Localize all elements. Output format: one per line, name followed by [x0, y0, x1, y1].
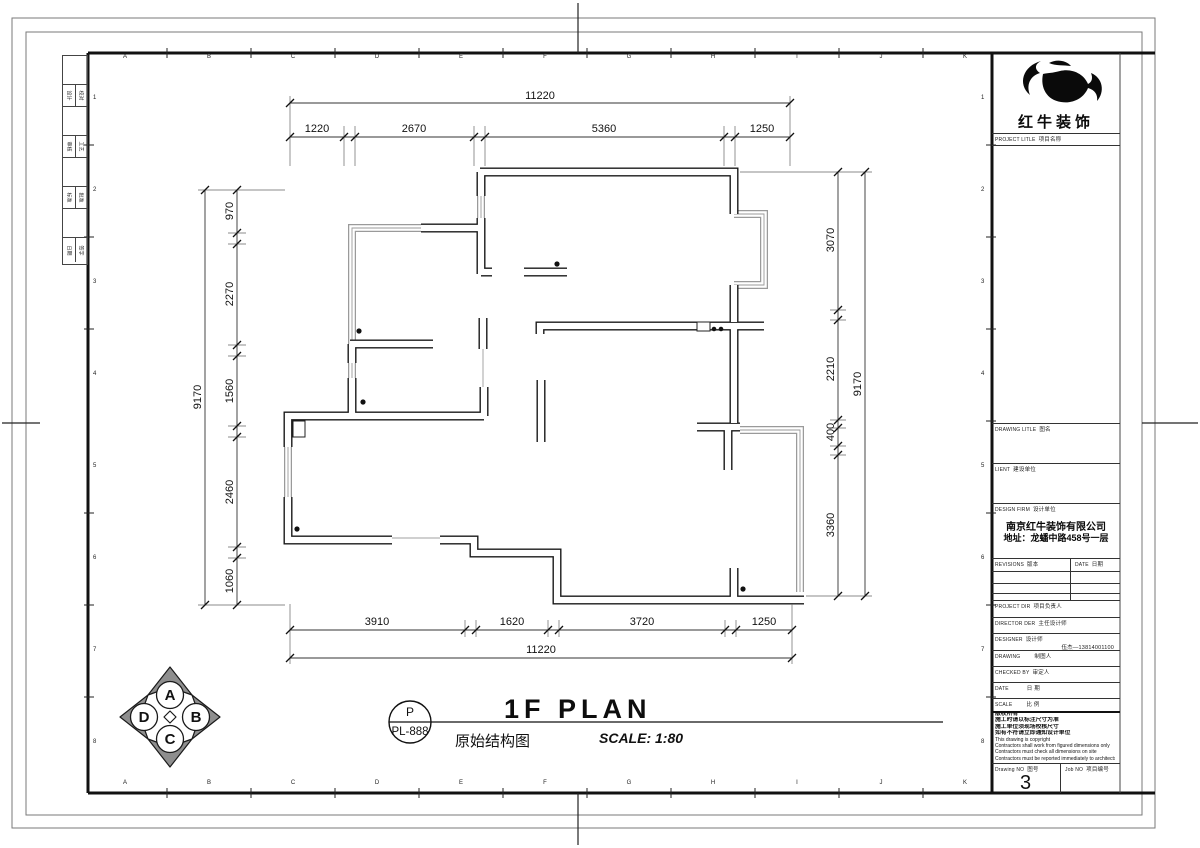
grid-number: 6 [981, 555, 984, 561]
number-boxes: Drawing NO图号 Job NO项目编号 3 [992, 763, 1120, 793]
grid-letter: K [963, 54, 967, 60]
drawing-by-row: DRAWING制图人 [992, 650, 1120, 666]
grid-number: 6 [93, 555, 96, 561]
compass-icon: A D B C [120, 667, 220, 767]
grid-letter: C [291, 780, 295, 786]
dim-bottom-seg: 3910 [365, 616, 389, 628]
grid-number: 1 [981, 95, 984, 101]
grid-letter: J [880, 54, 883, 60]
grid-letter: G [627, 780, 632, 786]
director-row: DIRECTOR DER主任设计师 [992, 617, 1120, 633]
grid-letter: K [963, 780, 967, 786]
dim-left-seg: 2270 [224, 282, 236, 306]
grid-number: 2 [981, 187, 984, 193]
signoff-strip: 设计 校对 审核 工艺 标准 批准 日期 签字 [62, 55, 88, 265]
grid-number: 8 [93, 739, 96, 745]
drawing-title-row: DRAWING LITLE图名 [992, 423, 1120, 463]
grid-letter: E [459, 780, 463, 786]
compass-letter-a: A [165, 687, 176, 704]
grid-letter: J [880, 780, 883, 786]
grid-number: 7 [981, 647, 984, 653]
design-firm-address: 地址：龙蟠中路458号一层 [992, 531, 1120, 544]
dim-left-seg: 1060 [224, 569, 236, 593]
brand-name: 红牛装饰 [992, 111, 1120, 132]
dim-right-seg: 2210 [825, 357, 837, 381]
grid-number: 7 [93, 647, 96, 653]
dim-left-overall: 9170 [192, 385, 204, 409]
client-row: LIENT建设单位 [992, 463, 1120, 503]
dim-top-seg: 1220 [305, 123, 329, 135]
compass-letter-c: C [165, 731, 176, 748]
dim-top-overall: 11220 [525, 90, 555, 102]
grid-letter: H [711, 54, 715, 60]
grid-number: 1 [93, 95, 96, 101]
grid-letter: E [459, 54, 463, 60]
dim-top-seg: 1250 [750, 123, 774, 135]
dim-right-seg: 3360 [825, 513, 837, 537]
grid-number: 2 [93, 187, 96, 193]
date-row: DATE日 期 [992, 682, 1120, 698]
grid-letter: H [711, 780, 715, 786]
grid-letter: B [207, 780, 211, 786]
grid-letter: I [796, 54, 798, 60]
dimension-ticks [201, 99, 869, 662]
checked-by-row: CHECKED BY审定人 [992, 666, 1120, 682]
dim-left-seg: 2460 [224, 480, 236, 504]
drawing-number: 3 [1020, 772, 1031, 795]
drawing-sheet: A D B C A B C D E F G H I J K A B C D [0, 0, 1200, 848]
dim-right-overall: 9170 [852, 372, 864, 396]
revisions-table: REVISIONS版本 DATE日期 [992, 558, 1120, 600]
grid-number: 5 [981, 463, 984, 469]
grid-letter: G [627, 54, 632, 60]
compass-letter-d: D [139, 709, 150, 726]
dimension-lines [198, 96, 872, 664]
grid-letter: B [207, 54, 211, 60]
grid-number: 3 [93, 279, 96, 285]
grid-letter: I [796, 780, 798, 786]
compass-letter-b: B [191, 709, 202, 726]
grid-letter: A [123, 54, 127, 60]
grid-letter: D [375, 54, 379, 60]
grid-letter: F [543, 780, 547, 786]
dim-right-seg: 400 [825, 423, 837, 441]
grid-number: 8 [981, 739, 984, 745]
dim-top-seg: 2670 [402, 123, 426, 135]
plan-title-zh: 原始结构图 [455, 730, 530, 751]
grid-letter: F [543, 54, 547, 60]
dim-left-seg: 970 [224, 202, 236, 220]
signoff-cell: 工艺 [75, 136, 88, 157]
project-title-row: PROJECT LITLE项目名称 [992, 133, 1120, 145]
dim-bottom-seg: 1620 [500, 616, 524, 628]
bubble-code-top: P [406, 705, 414, 719]
designer-row: DESIGNER设计师 伍杰—13814001100 [992, 633, 1120, 650]
project-title-empty [992, 145, 1120, 423]
dim-bottom-seg: 3720 [630, 616, 654, 628]
opening-lines [392, 349, 483, 538]
grid-number: 3 [981, 279, 984, 285]
title-block: 红牛装饰 PROJECT LITLE项目名称 DRAWING LITLE图名 L… [992, 53, 1120, 793]
signoff-cell: 校对 [75, 85, 88, 106]
signoff-cell: 标准 [63, 187, 75, 208]
grid-number: 4 [981, 371, 984, 377]
dim-bottom-overall: 11220 [526, 644, 556, 656]
bubble-code-bottom: PL-888 [391, 726, 428, 738]
plan-title-en: 1F PLAN [504, 694, 652, 725]
dim-right-seg: 3070 [825, 228, 837, 252]
structural-walls [288, 172, 804, 600]
dim-top-seg: 5360 [592, 123, 616, 135]
scale-row: SCALE比 例 [992, 698, 1120, 711]
grid-letter: D [375, 780, 379, 786]
project-dir-row: PROJECT DIR项目负责人 [992, 600, 1120, 617]
grid-letter: A [123, 780, 127, 786]
signoff-cell: 签字 [75, 238, 88, 262]
signoff-cell: 设计 [63, 85, 75, 106]
dim-left-seg: 1560 [224, 379, 236, 403]
notes-text: 版权所有 施工时请以标注尺寸为准 施工单位须现场校核尺寸 如有不符请立即通知设计… [995, 711, 1115, 762]
signoff-cell: 日期 [63, 238, 75, 262]
grid-number: 4 [93, 371, 96, 377]
signoff-cell: 审核 [63, 136, 75, 157]
plan-scale-note: SCALE: 1:80 [599, 730, 683, 746]
grid-number: 5 [93, 463, 96, 469]
dim-bottom-seg: 1250 [752, 616, 776, 628]
grid-letter: C [291, 54, 295, 60]
signoff-cell: 批准 [75, 187, 88, 208]
